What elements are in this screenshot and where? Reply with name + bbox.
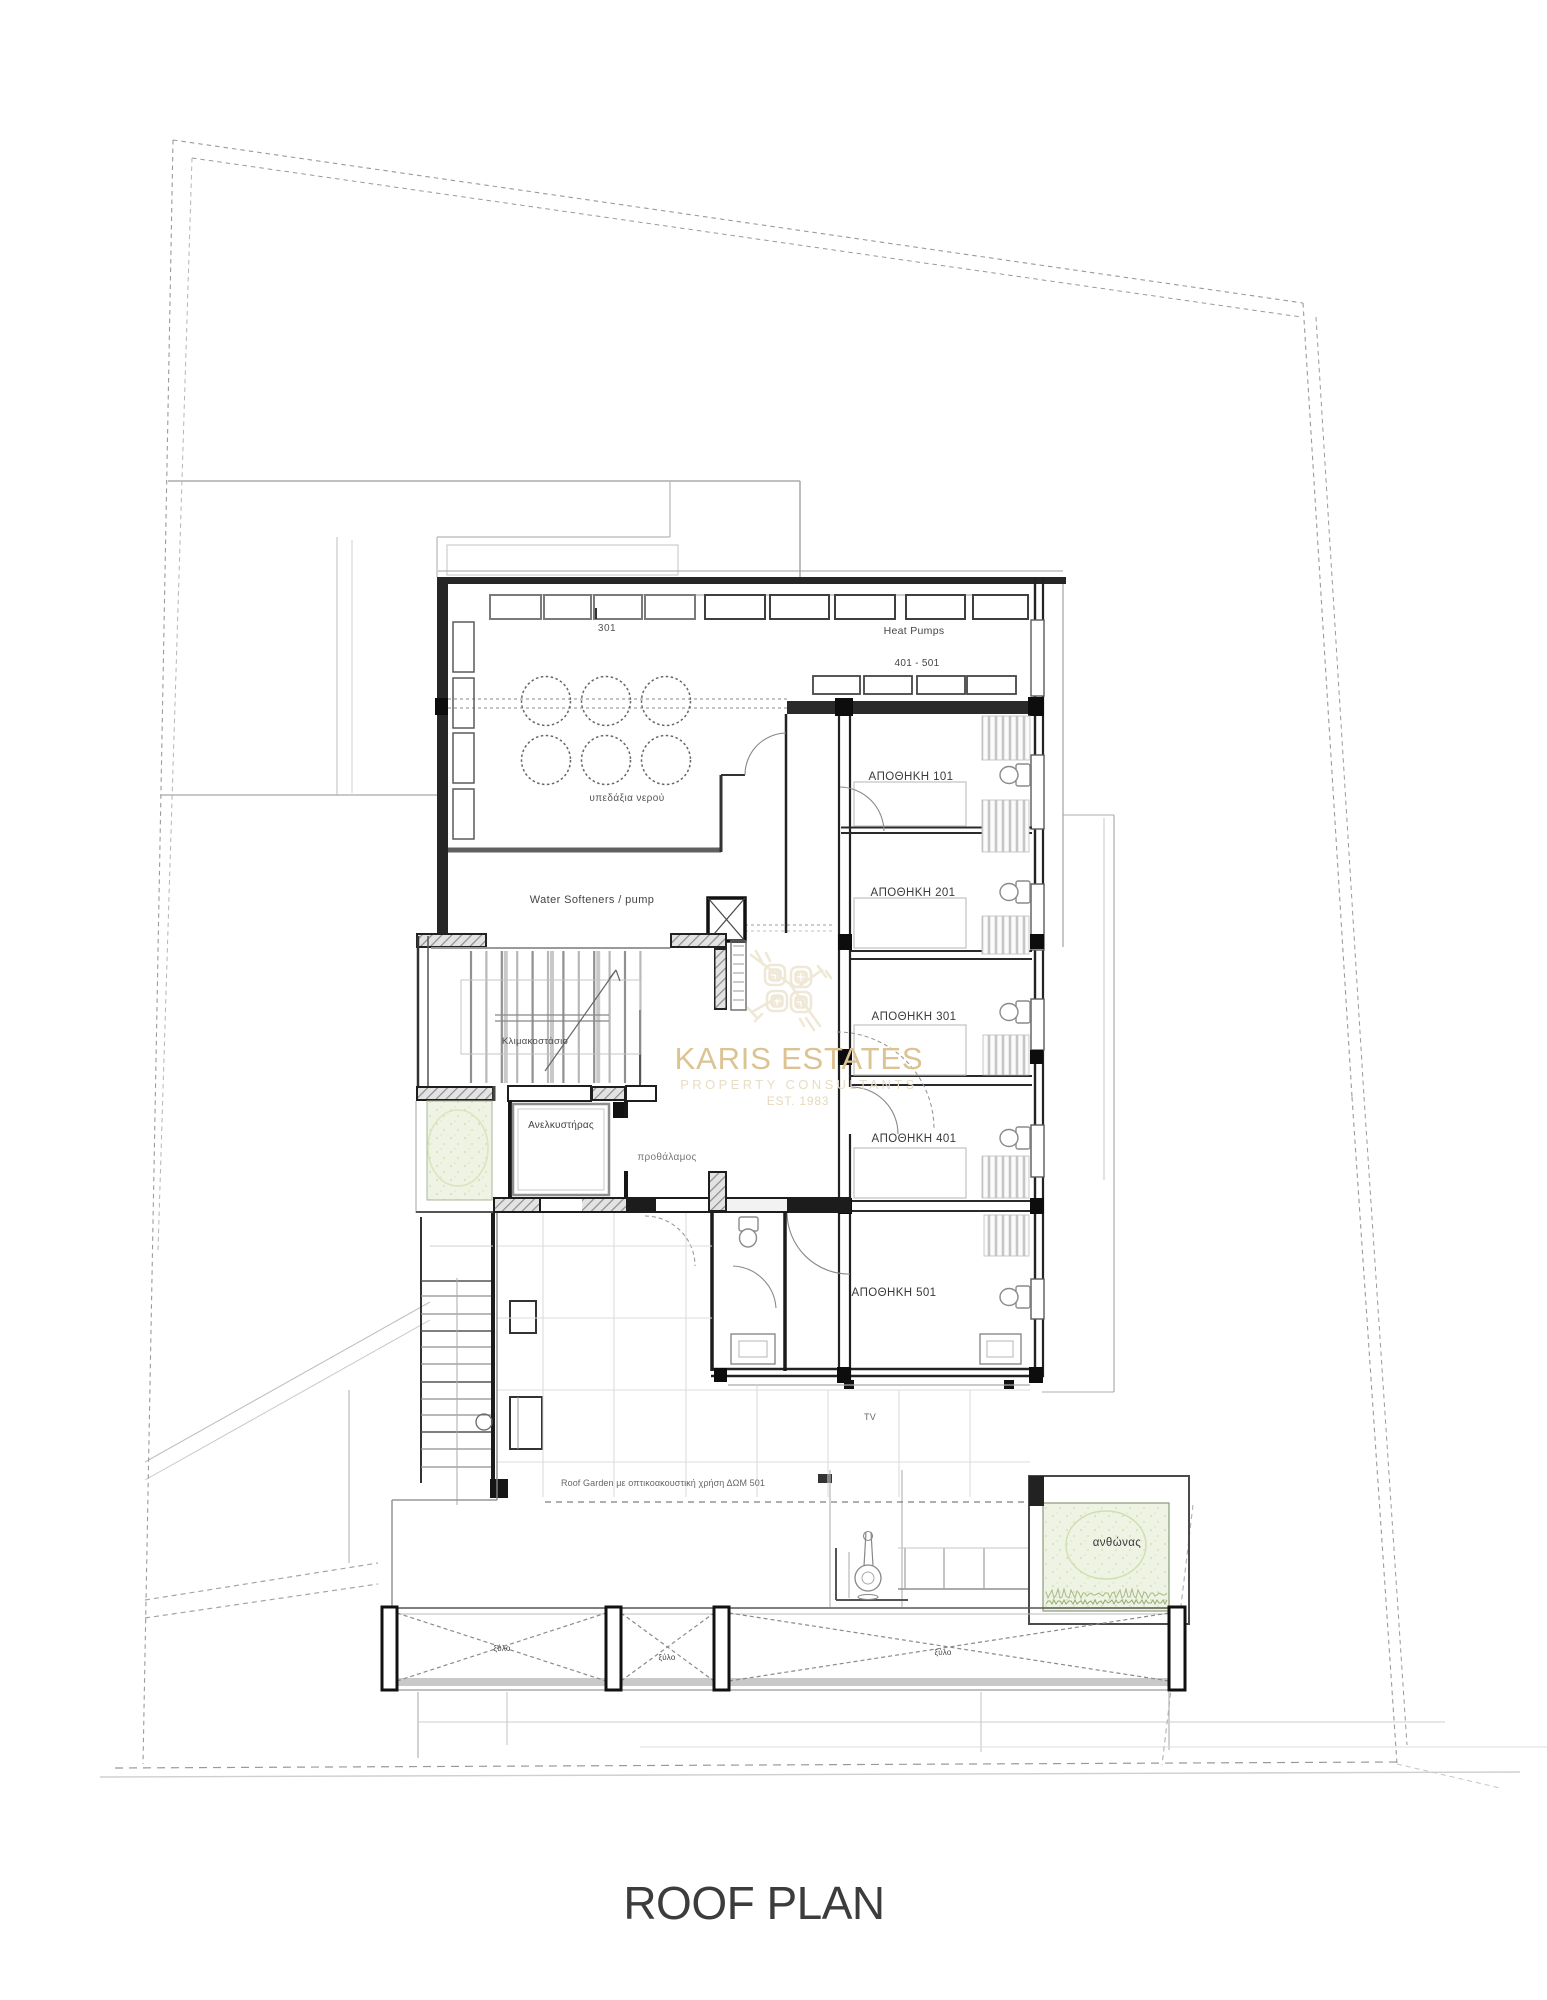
svg-text:ΑΠΟΘΗΚΗ 201: ΑΠΟΘΗΚΗ 201 (871, 887, 956, 899)
svg-text:Ανελκυστήρας: Ανελκυστήρας (528, 1119, 594, 1131)
svg-text:ξύλο: ξύλο (493, 1644, 510, 1653)
svg-text:ξύλο: ξύλο (934, 1648, 951, 1657)
svg-text:Κλιμακοστάσιο: Κλιμακοστάσιο (502, 1036, 568, 1047)
svg-text:EST. 1983: EST. 1983 (767, 1094, 830, 1108)
svg-text:ΑΠΟΘΗΚΗ 501: ΑΠΟΘΗΚΗ 501 (852, 1287, 937, 1299)
svg-text:TV: TV (864, 1412, 876, 1422)
svg-text:ΑΠΟΘΗΚΗ 301: ΑΠΟΘΗΚΗ 301 (872, 1011, 957, 1023)
svg-text:401 - 501: 401 - 501 (895, 658, 940, 669)
svg-text:ΑΠΟΘΗΚΗ 401: ΑΠΟΘΗΚΗ 401 (872, 1133, 957, 1145)
svg-text:Water Softeners / pump: Water Softeners / pump (530, 894, 655, 906)
svg-text:ξύλο: ξύλο (658, 1653, 675, 1662)
svg-text:ΑΠΟΘΗΚΗ 101: ΑΠΟΘΗΚΗ 101 (869, 771, 954, 783)
svg-text:Heat Pumps: Heat Pumps (884, 625, 945, 637)
svg-text:PROPERTY CONSULTANTS: PROPERTY CONSULTANTS (680, 1077, 918, 1092)
svg-text:301: 301 (598, 623, 616, 634)
svg-text:υπεδάξια νερού: υπεδάξια νερού (589, 792, 664, 804)
svg-text:ανθώνας: ανθώνας (1093, 1537, 1142, 1549)
svg-text:ROOF PLAN: ROOF PLAN (623, 1877, 884, 1929)
svg-text:KARIS ESTATES: KARIS ESTATES (675, 1041, 924, 1076)
svg-text:Roof Garden με οπτικοακουστική: Roof Garden με οπτικοακουστική χρήση ΔΩΜ… (561, 1478, 765, 1488)
svg-text:προθάλαμος: προθάλαμος (637, 1151, 696, 1163)
